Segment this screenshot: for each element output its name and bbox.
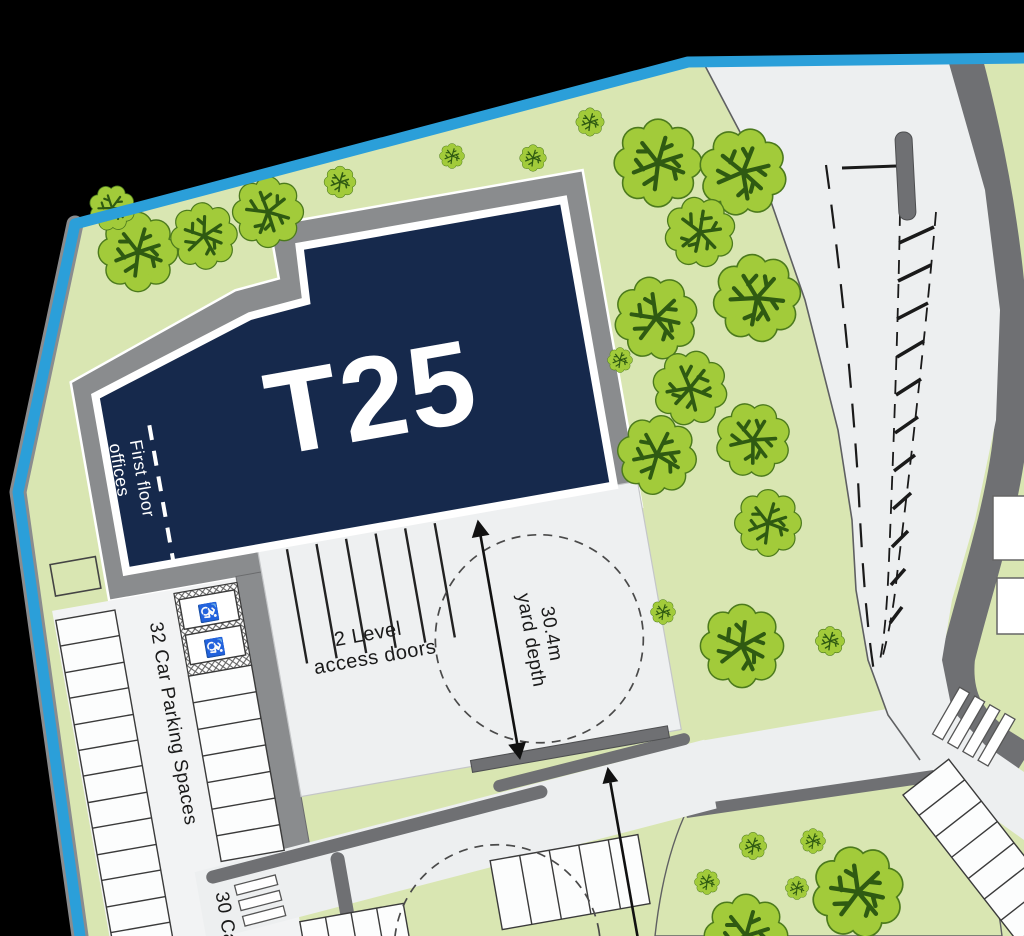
- bush-icon: [324, 166, 355, 197]
- wheelchair-icon: ♿: [203, 636, 226, 661]
- tree-icon: [615, 120, 701, 206]
- bush-icon: [801, 829, 826, 854]
- bush-icon: [786, 877, 809, 900]
- bush-icon: [816, 627, 845, 656]
- adjacent-building-fragment: [993, 496, 1024, 560]
- bush-icon: [520, 145, 546, 171]
- site-plan-page: ♿ ♿ 2 Level access doors 30.4m yard dept…: [0, 0, 1024, 936]
- bush-icon: [440, 144, 465, 169]
- adjacent-building-fragment: [997, 578, 1024, 634]
- bush-icon: [651, 600, 676, 625]
- site-plan-svg: ♿ ♿ 2 Level access doors 30.4m yard dept…: [0, 0, 1024, 936]
- access-road-stub: [338, 859, 347, 911]
- bush-icon: [739, 832, 766, 859]
- stop-line: [842, 166, 897, 168]
- bush-icon: [608, 348, 633, 373]
- wheelchair-icon: ♿: [197, 600, 220, 625]
- bush-icon: [576, 108, 604, 136]
- tree-icon: [233, 177, 303, 247]
- tree-icon: [735, 490, 801, 556]
- bush-icon: [695, 870, 720, 895]
